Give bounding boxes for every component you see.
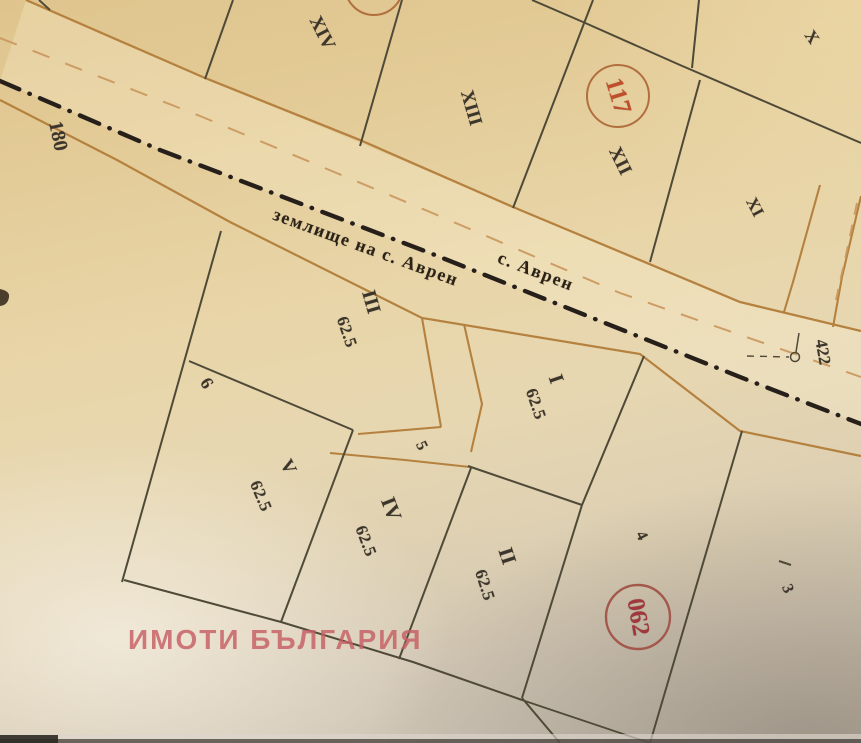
side-road-right-edge (464, 324, 482, 452)
parcel-line-ii-top (468, 466, 582, 505)
circle-partial-top (345, 0, 403, 15)
parcel-line-west-long (122, 231, 221, 582)
parcel-line-xiii-xii (513, 0, 593, 208)
junction-south-edge (330, 453, 470, 467)
cadastral-map-photo: 180 XIV XIII 117 XII X XI 422 землище на… (0, 0, 861, 743)
photo-bottom-corner-mark (0, 735, 58, 743)
parcel-line-4-3 (650, 431, 742, 743)
tick-above-3 (779, 561, 791, 565)
watermark-imoti-bulgaria: ИМОТИ БЪЛГАРИЯ (128, 624, 423, 656)
road-422-left-edge (784, 185, 820, 312)
plot-number-062: 062 (622, 596, 653, 637)
parcel-line-xiv-west (205, 0, 233, 79)
junction-north-edge (358, 427, 441, 434)
road-422-dashed-edge (836, 203, 857, 300)
road-422-right-edge (833, 196, 861, 327)
parcel-line-xii-xi (650, 80, 700, 262)
road-number-422: 422 (812, 338, 833, 366)
parcel-line-x-west (692, 0, 699, 68)
parcel-line-xiv-xiii (360, 0, 402, 146)
edge-glyph-fragment (0, 289, 9, 306)
photo-bottom-dark-strip (0, 739, 861, 743)
photo-bottom-light-strip (0, 734, 861, 739)
parcel-line-iii-v (189, 361, 353, 430)
side-road-left-edge (422, 318, 441, 427)
